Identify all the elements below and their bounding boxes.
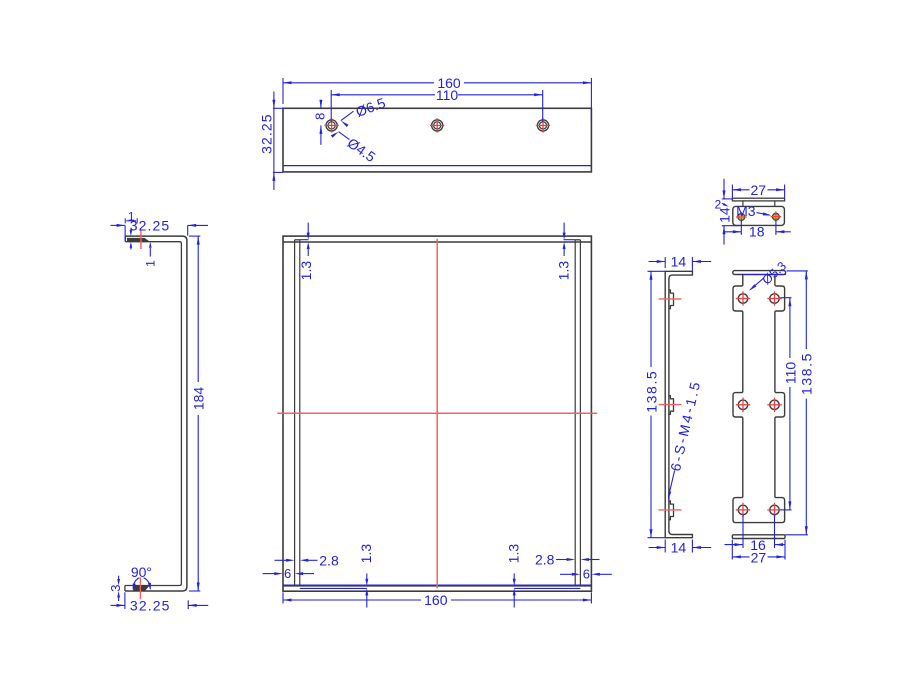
svg-text:27: 27	[751, 182, 767, 198]
svg-text:3: 3	[108, 585, 123, 592]
svg-text:2.8: 2.8	[319, 552, 339, 568]
svg-text:1: 1	[143, 260, 157, 267]
svg-text:110: 110	[782, 362, 798, 385]
svg-text:2.8: 2.8	[535, 552, 555, 568]
svg-text:6-S-M4-1.5: 6-S-M4-1.5	[667, 378, 704, 472]
svg-text:138.5: 138.5	[799, 352, 815, 395]
svg-text:184: 184	[191, 387, 207, 411]
svg-text:1.3: 1.3	[506, 544, 522, 564]
svg-text:32.25: 32.25	[258, 113, 274, 154]
svg-text:32.25: 32.25	[130, 217, 171, 233]
svg-text:8: 8	[312, 113, 327, 120]
svg-text:160: 160	[424, 592, 448, 608]
svg-text:M3: M3	[736, 203, 756, 219]
svg-text:14: 14	[671, 540, 687, 556]
svg-text:90°: 90°	[131, 564, 152, 580]
svg-text:110: 110	[436, 87, 459, 103]
svg-text:Ø4.5: Ø4.5	[344, 135, 378, 166]
svg-text:14: 14	[671, 254, 687, 270]
svg-text:32.25: 32.25	[130, 598, 171, 614]
svg-text:1.3: 1.3	[298, 261, 314, 281]
svg-text:6: 6	[284, 566, 291, 581]
svg-text:27: 27	[751, 550, 767, 566]
svg-text:138.5: 138.5	[643, 370, 659, 413]
svg-text:1: 1	[128, 210, 135, 224]
svg-text:1.3: 1.3	[556, 261, 572, 281]
svg-text:6: 6	[583, 567, 590, 582]
svg-text:Ø6.5: Ø6.5	[353, 94, 387, 119]
svg-text:18: 18	[749, 224, 765, 240]
svg-text:2: 2	[714, 198, 721, 212]
svg-text:1.3: 1.3	[358, 544, 374, 564]
